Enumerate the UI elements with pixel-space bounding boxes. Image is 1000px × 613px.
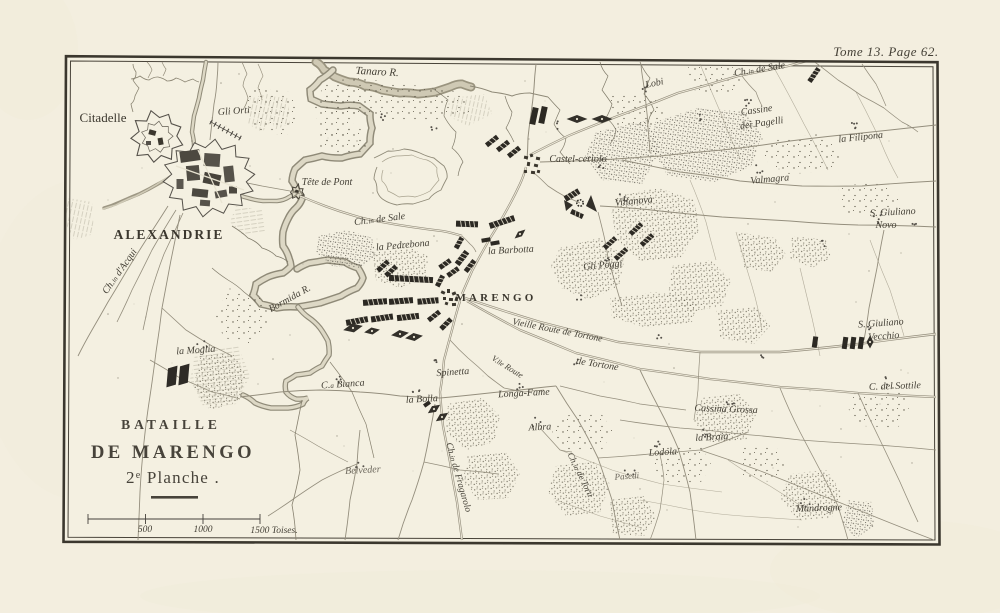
svg-text:BATAILLE: BATAILLE	[121, 417, 221, 432]
svg-text:Tanaro R.: Tanaro R.	[355, 65, 399, 79]
svg-text:Tome 13. Page 62.: Tome 13. Page 62.	[833, 44, 938, 59]
svg-text:la Braia: la Braia	[695, 431, 729, 444]
svg-text:Albra: Albra	[527, 421, 551, 433]
svg-text:Gli Orti: Gli Orti	[218, 105, 251, 118]
svg-text:Tête de Pont: Tête de Pont	[302, 177, 353, 188]
svg-text:Citadelle: Citadelle	[80, 110, 127, 125]
svg-text:Vecchio: Vecchio	[868, 330, 900, 343]
svg-text:C. del Sottile: C. del Sottile	[869, 380, 922, 393]
svg-text:DE MARENGO: DE MARENGO	[91, 443, 255, 463]
svg-text:Mandrogne: Mandrogne	[795, 502, 843, 515]
svg-text:1500 Toises.: 1500 Toises.	[250, 526, 297, 536]
svg-text:la Bolla: la Bolla	[406, 393, 438, 406]
svg-text:ALEXANDRIE: ALEXANDRIE	[114, 227, 225, 242]
svg-text:Belveder: Belveder	[345, 464, 381, 477]
svg-text:Pasedi: Pasedi	[613, 470, 640, 482]
svg-text:Castel-ceriolo: Castel-ceriolo	[549, 154, 606, 165]
svg-text:Novo: Novo	[874, 220, 896, 231]
svg-text:1000: 1000	[194, 525, 213, 535]
svg-text:Spinetta: Spinetta	[436, 366, 469, 379]
svg-text:500: 500	[138, 525, 153, 535]
svg-text:Cassina Grossa: Cassina Grossa	[694, 403, 758, 416]
svg-text:Lodola: Lodola	[647, 446, 677, 459]
svg-text:MARENGO: MARENGO	[455, 292, 536, 304]
